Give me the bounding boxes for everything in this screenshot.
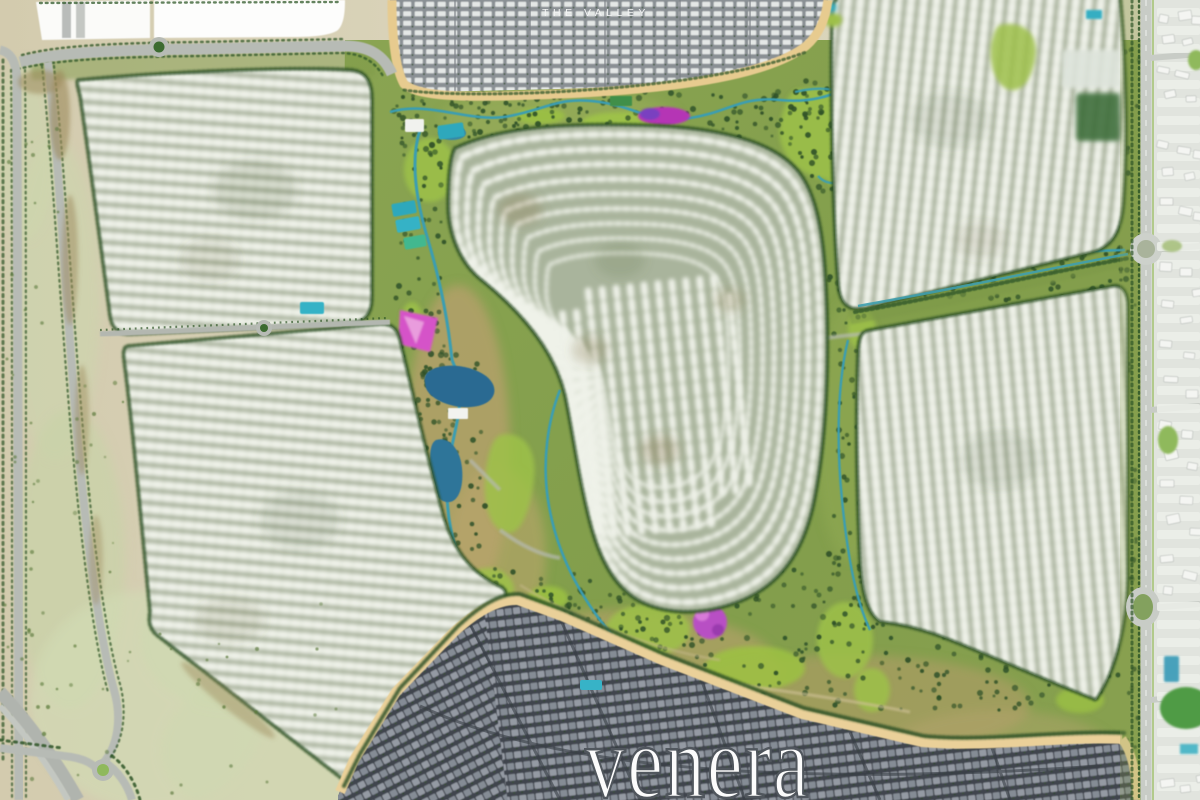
svg-text:venera: venera (585, 706, 810, 800)
svg-text:THE VALLEY: THE VALLEY (542, 7, 650, 19)
